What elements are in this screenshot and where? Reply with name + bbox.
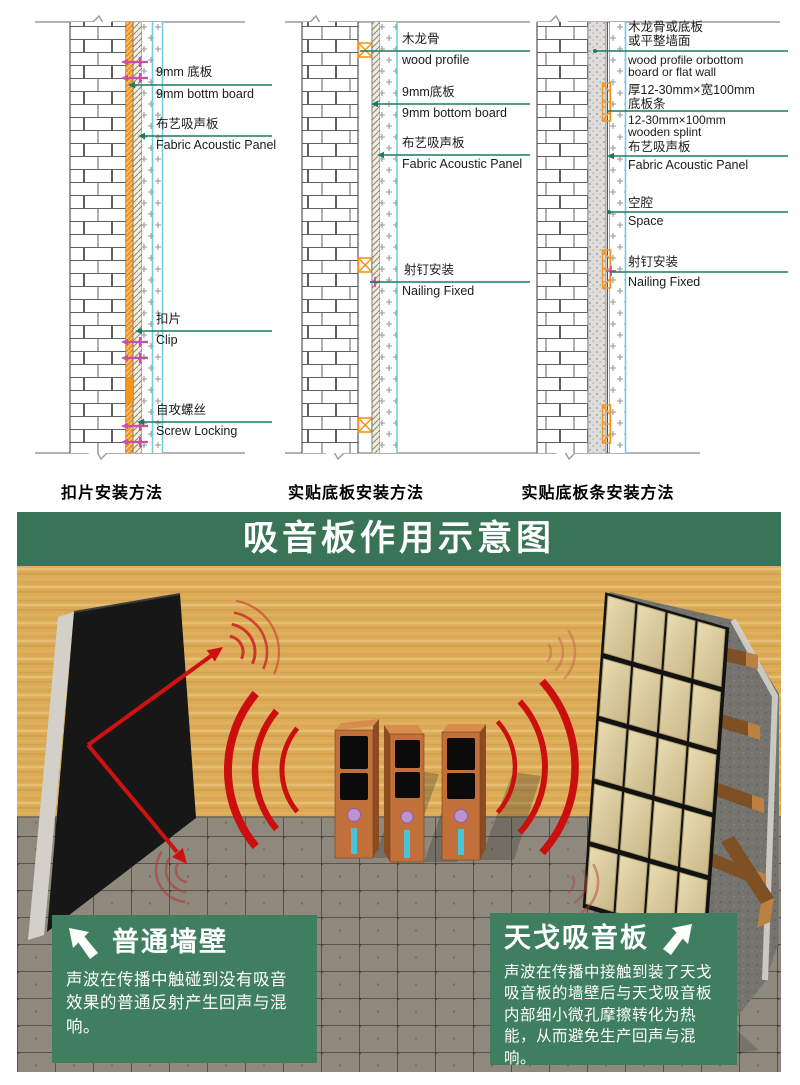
diagram-clip-method: [35, 16, 272, 459]
page: 9mm 底板 9mm bottm board 布艺吸声板 Fabric Acou…: [0, 0, 800, 1085]
illustration-title-band: 吸音板作用示意图: [17, 512, 781, 566]
label-zh: 木龙骨或底板: [628, 21, 703, 34]
label-en: Fabric Acoustic Panel: [628, 159, 748, 172]
brick-wall: [302, 22, 358, 453]
label-en: Fabric Acoustic Panel: [402, 158, 522, 171]
label-en: Fabric Acoustic Panel: [156, 139, 276, 152]
wood-profile-symbols: [359, 43, 373, 432]
label-en: Clip: [156, 334, 178, 347]
label-zh: 射钉安装: [404, 264, 454, 277]
label-zh: 厚12-30mm×宽100mm: [628, 84, 755, 97]
board-face-lines: [608, 22, 611, 453]
label-zh: 自攻螺丝: [156, 404, 206, 417]
label-zh: 9mm 底板: [156, 66, 212, 79]
plaster-layer: [588, 22, 606, 453]
plain-wall-title: 普通墙壁: [112, 928, 228, 958]
label-en: 9mm bottm board: [156, 88, 254, 101]
diagram3-caption: 实贴底板条安装方法: [513, 479, 683, 503]
label-en: Space: [628, 215, 663, 228]
label-zh: 或平整墙面: [628, 35, 691, 48]
arrow-up-left-icon: [66, 925, 102, 961]
acoustic-panel-infobox: 天戈吸音板 声波在传播中接触到装了天戈吸音板的墙壁后与天戈吸音板内部细小微孔摩擦…: [490, 913, 737, 1065]
brick-wall: [70, 22, 126, 453]
label-en: Nailing Fixed: [628, 276, 700, 289]
label-zh: 底板条: [628, 98, 666, 111]
label-zh: 9mm底板: [402, 86, 455, 99]
label-zh: 扣片: [156, 313, 181, 326]
sound-absorption-illustration: 吸音板作用示意图 普通墙壁 声波在传播中触碰到没有吸音效果的普通反射产生回声与混…: [17, 512, 781, 1072]
acoustic-tiles: [583, 592, 730, 943]
label-en: wooden splint: [628, 126, 701, 138]
speaker-left: [335, 719, 379, 858]
label-en: board or flat wall: [628, 66, 716, 78]
acoustic-panel-text: 声波在传播中接触到装了天戈吸音板的墙壁后与天戈吸音板内部细小微孔摩擦转化为热能，…: [504, 962, 723, 1069]
label-zh: 木龙骨: [402, 33, 440, 46]
speaker-center: [384, 725, 424, 862]
label-en: 9mm bottom board: [402, 107, 507, 120]
arrow-up-right-icon: [659, 921, 695, 957]
label-zh: 布艺吸声板: [156, 118, 219, 131]
illustration-title: 吸音板作用示意图: [17, 512, 781, 566]
label-en: Screw Locking: [156, 425, 237, 438]
clip-block: [126, 378, 134, 403]
label-zh: 射钉安装: [628, 256, 678, 269]
label-zh: 布艺吸声板: [628, 141, 691, 154]
speaker-right: [442, 724, 486, 860]
label-en: Nailing Fixed: [402, 285, 474, 298]
diagram-glued-board-method: [285, 16, 530, 459]
label-zh: 布艺吸声板: [402, 137, 465, 150]
plain-wall-text: 声波在传播中触碰到没有吸音效果的普通反射产生回声与混响。: [66, 969, 303, 1039]
acoustic-panel-title: 天戈吸音板: [504, 924, 649, 954]
diagram1-caption: 扣片安装方法: [22, 479, 202, 503]
diagram2-caption: 实贴底板安装方法: [276, 479, 436, 503]
brick-wall: [537, 22, 588, 453]
label-zh: 空腔: [628, 197, 653, 210]
label-en: wood profile: [402, 54, 469, 67]
plain-wall-infobox: 普通墙壁 声波在传播中触碰到没有吸音效果的普通反射产生回声与混响。: [52, 915, 317, 1063]
